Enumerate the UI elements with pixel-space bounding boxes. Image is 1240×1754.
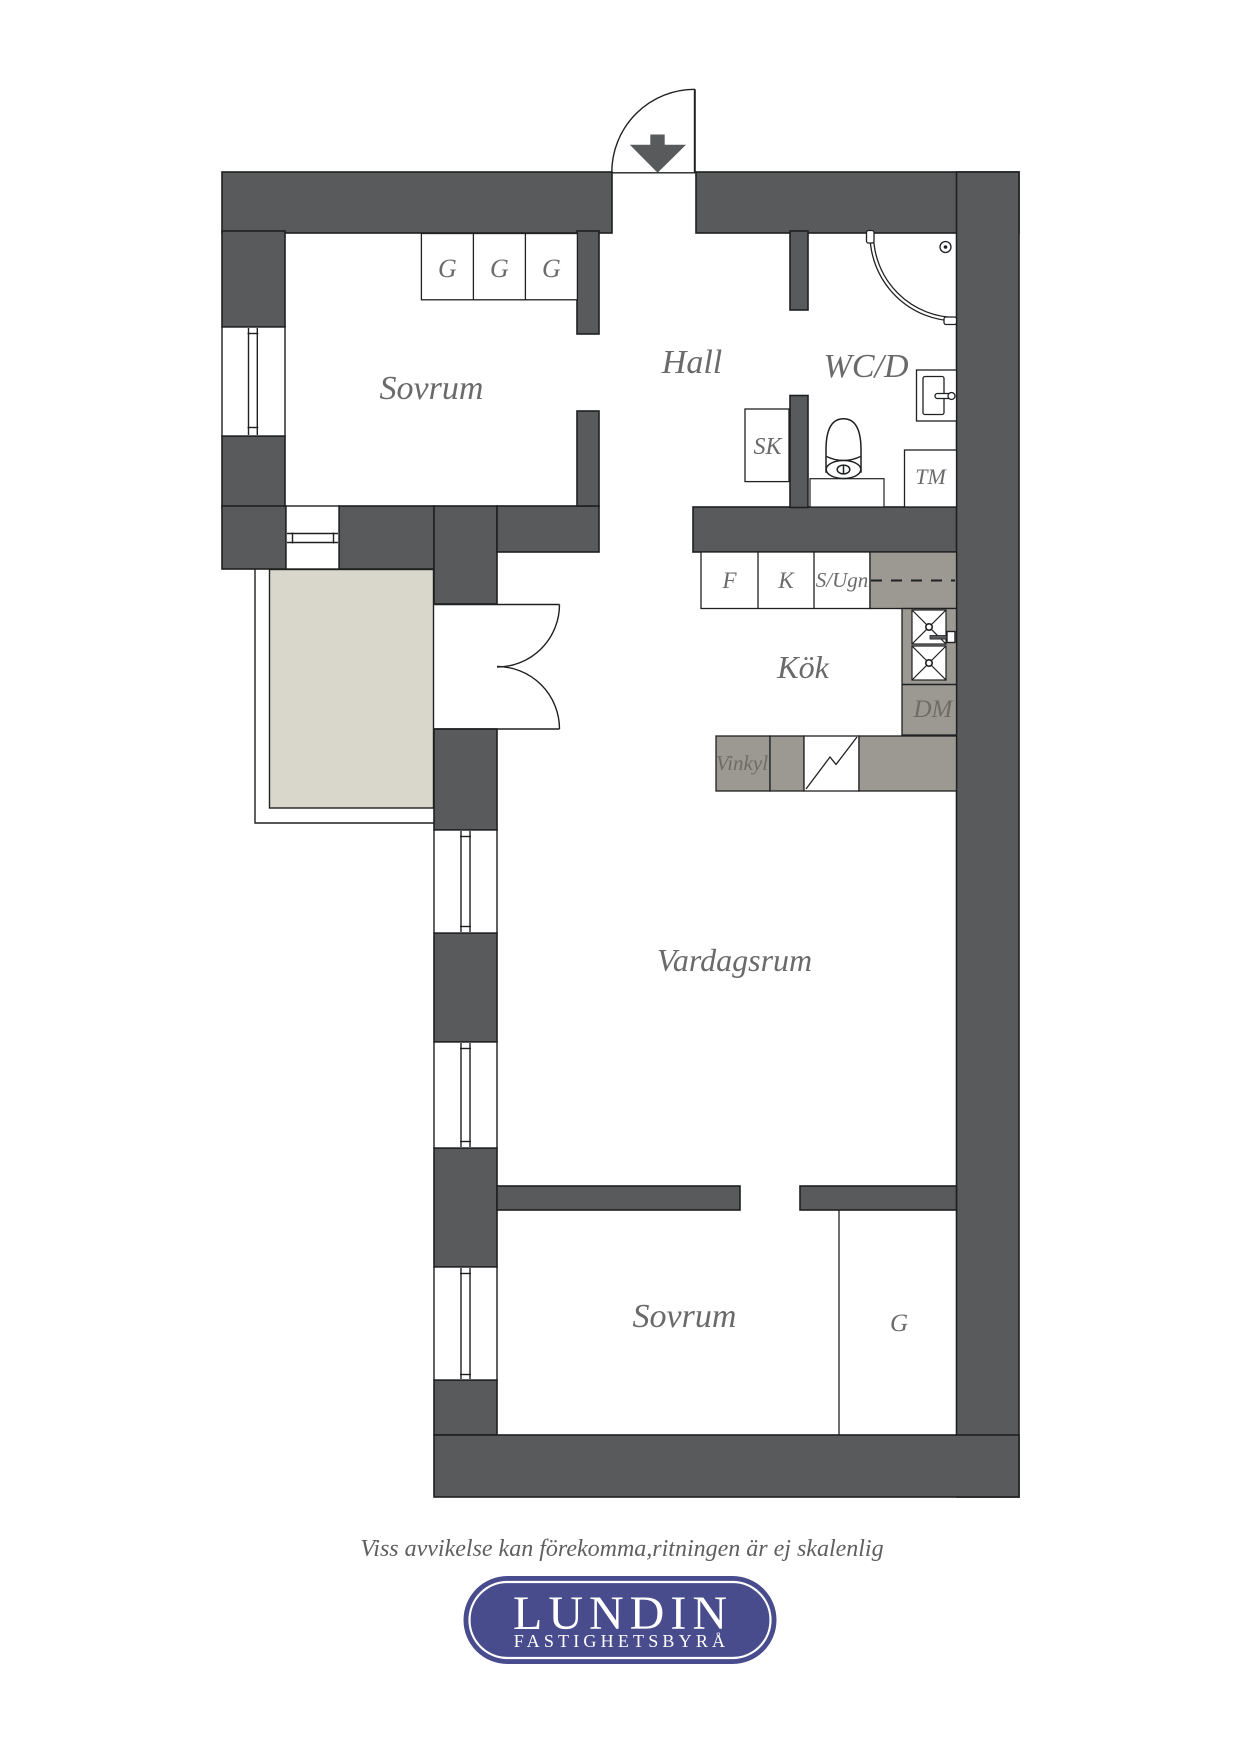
svg-text:G: G bbox=[542, 254, 561, 283]
svg-text:Sovrum: Sovrum bbox=[633, 1298, 737, 1335]
svg-text:WC/D: WC/D bbox=[824, 348, 909, 385]
svg-text:Sovrum: Sovrum bbox=[380, 370, 484, 407]
svg-text:FASTIGHETSBYRÅ: FASTIGHETSBYRÅ bbox=[514, 1631, 729, 1651]
svg-text:DM: DM bbox=[913, 696, 954, 723]
svg-text:F: F bbox=[721, 568, 737, 593]
svg-text:Kök: Kök bbox=[776, 649, 829, 685]
svg-text:Vardagsrum: Vardagsrum bbox=[657, 942, 812, 978]
svg-text:K: K bbox=[777, 568, 795, 593]
svg-text:Viss avvikelse kan förekomma,r: Viss avvikelse kan förekomma,ritningen ä… bbox=[360, 1536, 883, 1562]
svg-text:Vinkyl: Vinkyl bbox=[716, 751, 768, 775]
svg-text:S/Ugn: S/Ugn bbox=[816, 568, 869, 592]
svg-text:SK: SK bbox=[753, 434, 783, 460]
svg-text:Hall: Hall bbox=[661, 344, 722, 381]
svg-text:G: G bbox=[438, 254, 457, 283]
svg-text:TM: TM bbox=[915, 464, 947, 489]
svg-text:G: G bbox=[890, 1310, 908, 1337]
svg-text:G: G bbox=[490, 254, 509, 283]
